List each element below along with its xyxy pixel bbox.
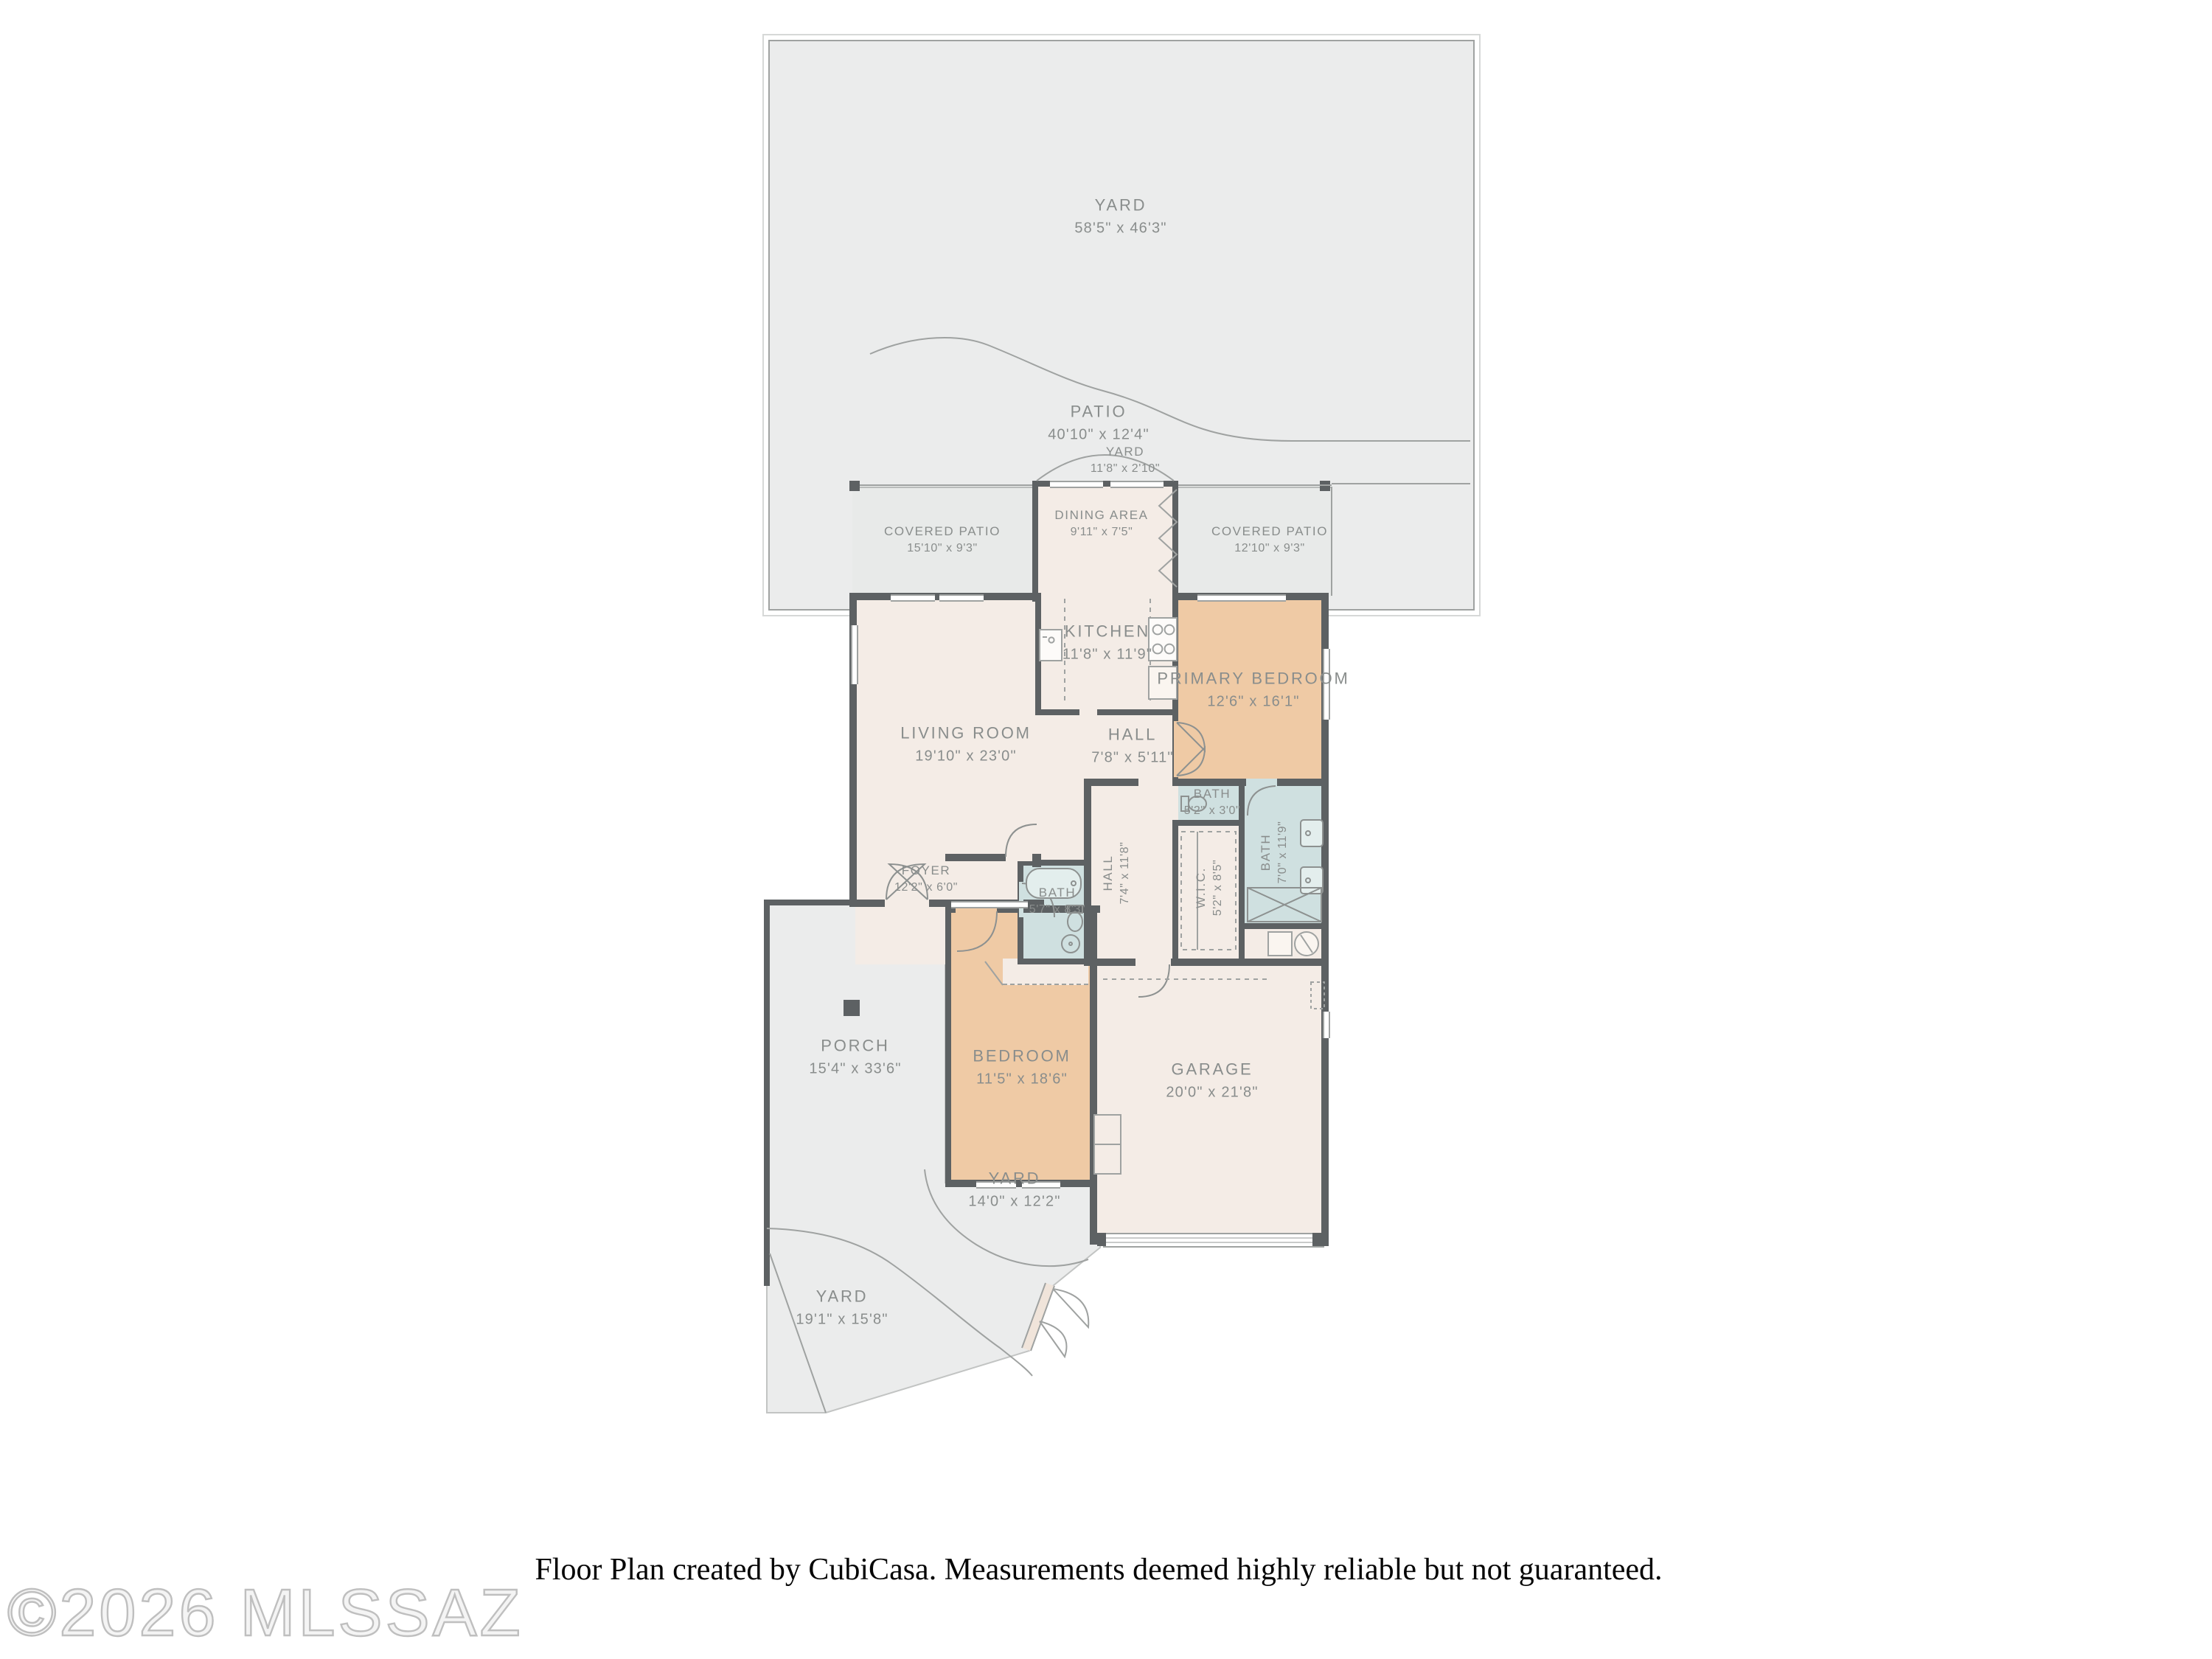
window xyxy=(1323,1012,1330,1038)
door-opening xyxy=(1174,721,1178,777)
label-covered-patio-right: COVERED PATIO 12'10" x 9'3" xyxy=(1211,522,1328,557)
wall-segment xyxy=(1172,820,1243,826)
wall-segment xyxy=(1097,1233,1106,1246)
label-living-room: LIVING ROOM 19'10" x 23'0" xyxy=(900,724,1032,769)
wall-segment xyxy=(1035,599,1041,715)
window xyxy=(1197,594,1286,602)
gate xyxy=(1022,1283,1088,1357)
label-yard-bottom: YARD 19'1" x 15'8" xyxy=(796,1287,888,1332)
window xyxy=(951,901,1028,908)
label-garage: GARAGE 20'0" x 21'8" xyxy=(1166,1060,1258,1105)
fence-post xyxy=(1320,481,1330,491)
floor-plan-page: YARD 58'5" x 46'3" PATIO 40'10" x 12'4" … xyxy=(0,0,2212,1659)
window xyxy=(1110,481,1164,488)
dining-area-floor xyxy=(1038,487,1172,602)
porch-pillar xyxy=(844,1000,860,1016)
wall-segment xyxy=(764,900,855,905)
wall-segment xyxy=(1032,854,1041,867)
floor-plan-canvas: YARD 58'5" x 46'3" PATIO 40'10" x 12'4" … xyxy=(0,0,2212,1659)
mls-watermark: ©2026 MLSSAZ xyxy=(7,1575,524,1652)
window xyxy=(891,594,935,602)
fence-post xyxy=(849,481,860,491)
wall-segment xyxy=(945,854,1006,861)
label-hall-lower: HALL 7'4" x 11'8" xyxy=(1099,842,1134,905)
wall-segment xyxy=(1087,779,1138,786)
wall-segment xyxy=(1032,481,1038,602)
window xyxy=(939,594,984,602)
label-bath-hall: BATH 5'7" x 8'3" xyxy=(1029,883,1086,919)
wall-segment xyxy=(1172,481,1178,602)
label-porch: PORCH 15'4" x 33'6" xyxy=(809,1037,901,1082)
wall-segment xyxy=(1239,826,1245,964)
wall-segment xyxy=(945,905,951,1186)
label-dining-area: DINING AREA 9'11" x 7'5" xyxy=(1054,506,1148,541)
disclaimer-text: Floor Plan created by CubiCasa. Measurem… xyxy=(535,1551,1662,1588)
label-kitchen: KITCHEN 11'8" x 11'9" xyxy=(1062,622,1152,667)
label-bath-small: BATH 5'2" x 3'0" xyxy=(1184,785,1241,820)
wall-segment xyxy=(1172,820,1178,964)
wall-segment xyxy=(1084,959,1329,966)
label-bath-primary: BATH 7'0" x 11'9" xyxy=(1256,821,1292,884)
wall-segment xyxy=(1090,908,1097,1245)
label-yard-mid: YARD 14'0" x 12'2" xyxy=(968,1169,1060,1214)
door-opening xyxy=(1246,779,1277,786)
wall-segment xyxy=(1312,1233,1321,1246)
door-opening xyxy=(1135,959,1171,966)
wall-segment xyxy=(1035,709,1079,715)
label-primary-bedroom: PRIMARY BEDROOM 12'6" x 16'1" xyxy=(1157,669,1349,714)
window xyxy=(851,625,858,684)
label-foyer: FOYER 12'2" x 6'0" xyxy=(894,861,958,897)
wall-segment xyxy=(1018,959,1090,964)
garage-door xyxy=(1103,1233,1324,1248)
window xyxy=(1050,481,1103,488)
label-wic: W.I.C. 5'2" x 8'5" xyxy=(1192,860,1227,917)
label-patio: PATIO 40'10" x 12'4" xyxy=(1048,403,1150,448)
wall-segment xyxy=(1239,923,1329,929)
label-hall-upper: HALL 7'8" x 5'11" xyxy=(1091,726,1174,771)
wall-segment xyxy=(764,900,770,1286)
door-opening xyxy=(1019,882,1023,917)
label-yard-small: YARD 11'8" x 2'10" xyxy=(1091,442,1160,478)
door-opening xyxy=(885,900,929,907)
door-opening xyxy=(1006,854,1032,861)
label-covered-patio-left: COVERED PATIO 15'10" x 9'3" xyxy=(884,522,1001,557)
label-yard-top: YARD 58'5" x 46'3" xyxy=(1074,196,1166,241)
label-bedroom: BEDROOM 11'5" x 18'6" xyxy=(973,1047,1071,1092)
